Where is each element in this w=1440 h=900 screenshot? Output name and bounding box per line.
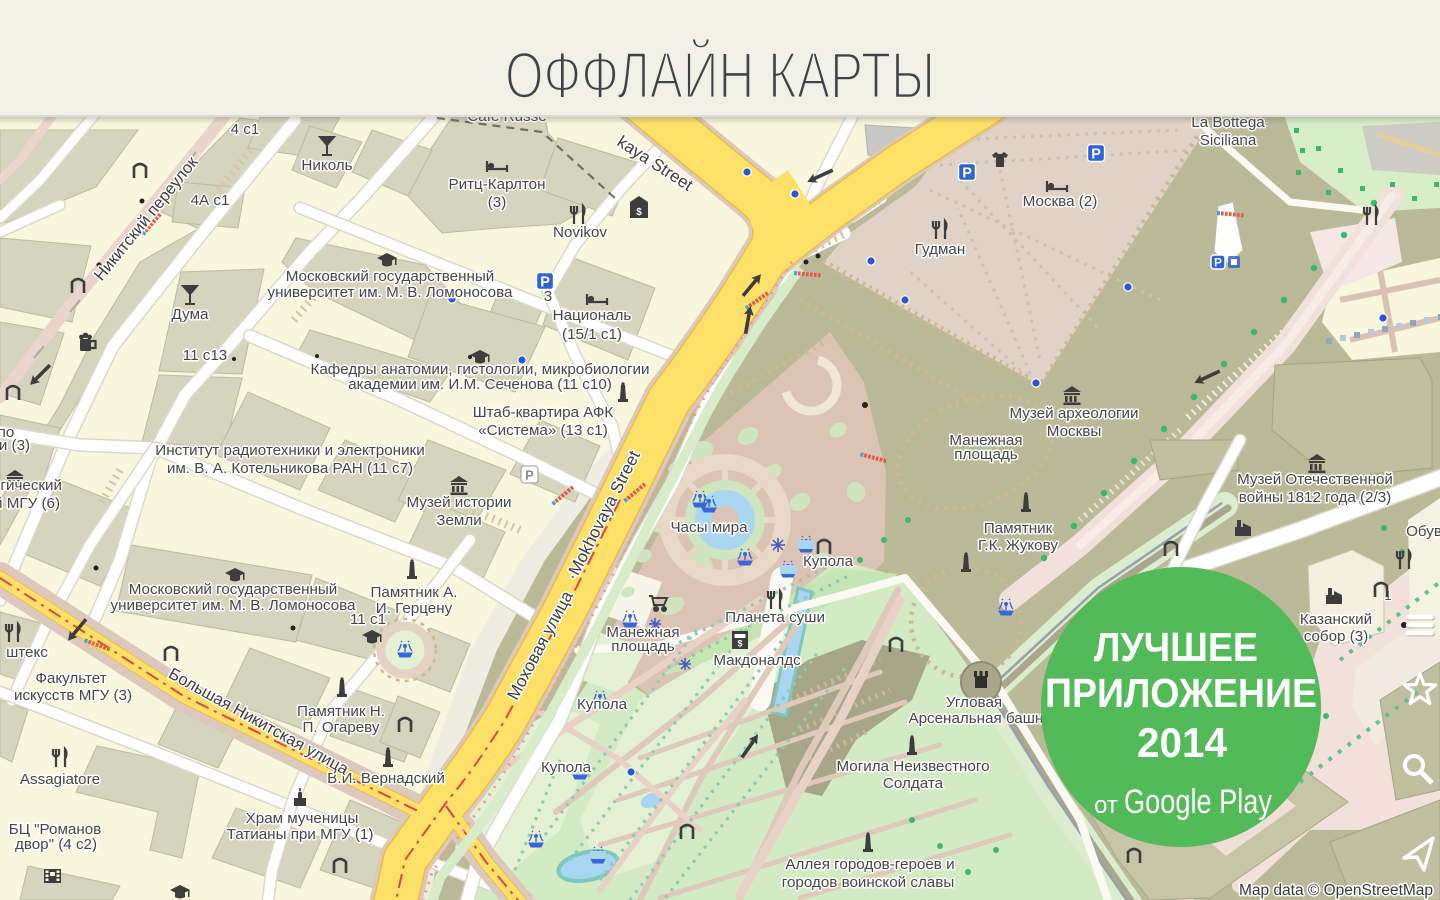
svg-text:Москвы: Москвы	[1047, 423, 1102, 440]
svg-text:городов воинской славы: городов воинской славы	[782, 874, 954, 891]
svg-text:Памятник Н.: Памятник Н.	[297, 703, 385, 720]
svg-text:$: $	[636, 207, 642, 218]
svg-text:университет им. М. В. Ломоносо: университет им. М. В. Ломоносова	[111, 597, 357, 614]
svg-text:$: $	[737, 639, 742, 649]
svg-text:ЛУЧШЕЕ: ЛУЧШЕЕ	[1094, 624, 1258, 670]
svg-text:Арсенальная башня: Арсенальная башня	[908, 710, 1051, 727]
svg-text:Московский государственный: Московский государственный	[129, 581, 338, 598]
svg-text:Музей Отечественной: Музей Отечественной	[1237, 471, 1393, 488]
svg-text:П. Огареву: П. Огареву	[302, 719, 379, 736]
svg-text:Татианы при МГУ (1): Татианы при МГУ (1)	[227, 826, 374, 843]
svg-text:академии им. И.М. Сеченова (11: академии им. И.М. Сеченова (11 с10)	[348, 376, 612, 393]
svg-text:Факультет: Факультет	[35, 670, 106, 687]
svg-text:4А с1: 4А с1	[191, 192, 230, 209]
svg-text:P: P	[1214, 255, 1222, 269]
svg-text:(3): (3)	[488, 194, 507, 211]
svg-text:Казанский: Казанский	[1300, 611, 1372, 628]
svg-text:Дума: Дума	[172, 306, 209, 323]
svg-text:ти (3): ти (3)	[0, 437, 30, 454]
svg-text:Купола: Купола	[577, 696, 628, 713]
svg-text:университет им. М. В. Ломоносо: университет им. М. В. Ломоносова	[268, 284, 514, 301]
svg-text:штекс: штекс	[6, 644, 48, 661]
svg-text:войны 1812 года (2/3): войны 1812 года (2/3)	[1239, 489, 1391, 506]
svg-text:Ритц-Карлтон: Ритц-Карлтон	[448, 176, 545, 193]
svg-text:Храм мученицы: Храм мученицы	[246, 810, 359, 827]
svg-text:Памятник: Памятник	[984, 520, 1053, 537]
svg-text:(15/1 с1): (15/1 с1)	[562, 326, 622, 343]
svg-text:площадь: площадь	[611, 638, 675, 655]
svg-text:Часы мира: Часы мира	[670, 519, 748, 536]
svg-text:Штаб-квартира АФК: Штаб-квартира АФК	[473, 404, 614, 421]
svg-text:P: P	[962, 165, 972, 181]
svg-text:«Система» (13 с1): «Система» (13 с1)	[478, 422, 608, 439]
svg-text:11 с13: 11 с13	[183, 347, 227, 364]
svg-text:2014: 2014	[1137, 719, 1228, 766]
svg-text:собор (3): собор (3)	[1304, 628, 1369, 645]
svg-text:Угловая: Угловая	[946, 694, 1002, 711]
svg-text:Земли: Земли	[436, 512, 481, 529]
svg-text:Музей археологии: Музей археологии	[1009, 405, 1138, 422]
svg-text:Музей истории: Музей истории	[406, 494, 511, 511]
svg-text:огический: огический	[0, 477, 62, 494]
svg-text:Купола: Купола	[803, 553, 854, 570]
svg-text:Map data © OpenStreetMap: Map data © OpenStreetMap	[1239, 882, 1433, 899]
svg-text:Макдоналдс: Макдоналдс	[713, 652, 801, 669]
svg-text:P: P	[1091, 146, 1101, 162]
svg-text:им. В. А. Котельникова РАН (11: им. В. А. Котельникова РАН (11 с7)	[167, 460, 413, 477]
svg-text:3: 3	[544, 288, 552, 305]
svg-text:И. Герцену: И. Герцену	[376, 600, 453, 617]
svg-text:двор" (4 с2): двор" (4 с2)	[15, 836, 97, 853]
svg-text:11 с1: 11 с1	[350, 611, 386, 628]
svg-text:Николь: Николь	[301, 157, 352, 174]
svg-text:Купола: Купола	[541, 759, 592, 776]
svg-text:P: P	[525, 468, 534, 483]
svg-text:й МГУ (6): й МГУ (6)	[0, 495, 60, 512]
svg-text:искусств МГУ (3): искусств МГУ (3)	[14, 687, 132, 704]
svg-text:Могила Неизвестного: Могила Неизвестного	[836, 758, 989, 775]
svg-text:Националь: Националь	[553, 307, 632, 324]
svg-text:площадь: площадь	[954, 446, 1018, 463]
svg-text:Солдата: Солдата	[883, 775, 944, 792]
svg-text:Siciliana: Siciliana	[1200, 132, 1257, 149]
svg-text:Памятник А.: Памятник А.	[370, 584, 457, 601]
svg-text:от: от	[1094, 792, 1118, 819]
svg-text:Планета суши: Планета суши	[725, 609, 825, 626]
svg-text:Обувь: Обувь	[1406, 523, 1440, 540]
svg-text:Г.К. Жукову: Г.К. Жукову	[978, 537, 1058, 554]
svg-text:ОФФЛАЙН КАРТЫ: ОФФЛАЙН КАРТЫ	[505, 37, 935, 112]
svg-text:Аллея городов-героев и: Аллея городов-героев и	[785, 856, 954, 873]
svg-text:Google Play: Google Play	[1124, 783, 1272, 821]
svg-text:Гудман: Гудман	[915, 241, 965, 258]
svg-text:Институт радиотехники и электр: Институт радиотехники и электроники	[155, 442, 424, 459]
svg-text:Assagiatore: Assagiatore	[20, 771, 100, 788]
svg-text:Московский государственный: Московский государственный	[286, 268, 495, 285]
svg-text:ПРИЛОЖЕНИЕ: ПРИЛОЖЕНИЕ	[1045, 670, 1317, 716]
svg-text:Novikov: Novikov	[553, 224, 607, 241]
svg-text:Москва (2): Москва (2)	[1023, 193, 1098, 210]
